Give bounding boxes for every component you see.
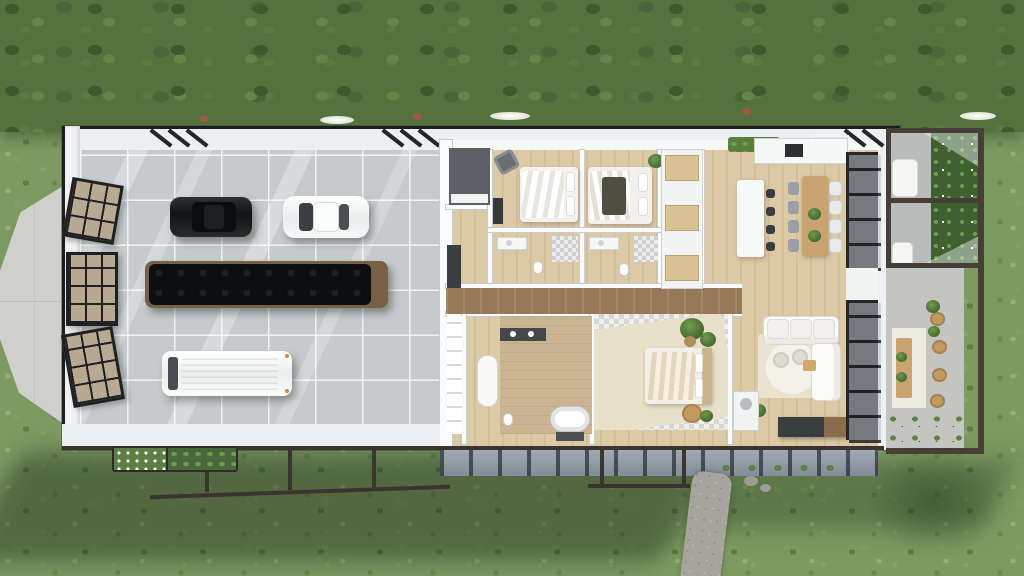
barn-door-open-top <box>62 177 124 245</box>
pergola-south-beam <box>886 448 984 454</box>
wicker-chair <box>930 312 945 326</box>
wicker-chair <box>682 404 702 423</box>
plant <box>700 410 713 422</box>
bed-pillow <box>638 173 648 192</box>
suv-roof <box>204 205 224 229</box>
bedroom1-dresser <box>493 198 503 224</box>
bedroom2-bed <box>588 167 652 224</box>
southwest-planter-box <box>112 446 238 472</box>
van-windshield <box>168 357 178 390</box>
sofa-cushion <box>814 320 834 338</box>
aerial-floorplan-render <box>0 0 1024 576</box>
pergola-cross-beam <box>886 198 984 203</box>
coupe-rear-window <box>339 204 349 230</box>
bar-stool <box>766 242 775 251</box>
sofa-cushion <box>768 320 788 338</box>
wicker-chair <box>932 340 947 354</box>
outdoor-dining-table <box>896 338 912 398</box>
southeast-garden-bed <box>718 460 834 500</box>
table-plant <box>808 208 821 220</box>
sofa-cushion <box>791 320 811 338</box>
green-shrubs <box>168 448 236 470</box>
deck-plant <box>926 300 940 313</box>
coffee-tray-table <box>803 360 816 371</box>
media-console <box>778 417 846 437</box>
hedge-flowers <box>960 112 996 120</box>
cooktop <box>785 144 803 157</box>
frame-post <box>372 450 376 488</box>
washer-drum <box>740 398 752 410</box>
wall <box>580 150 584 288</box>
toilet <box>504 414 512 425</box>
terracotta-pot <box>200 115 209 122</box>
toilet <box>534 262 542 273</box>
closet-shelf-wall <box>447 316 462 434</box>
basin <box>528 331 534 337</box>
covered-boat <box>145 261 388 308</box>
black-suv <box>170 197 252 237</box>
van-marker-light <box>285 354 289 358</box>
trailer-hook <box>139 263 146 267</box>
central-hallway <box>446 288 742 314</box>
shower-checker-floor <box>552 236 578 262</box>
corner-plant <box>700 332 716 347</box>
frame-post <box>682 450 686 486</box>
dining-chair <box>788 182 799 195</box>
dining-chair <box>830 220 841 233</box>
trailer-hook <box>139 302 146 306</box>
glass-pane <box>849 303 881 443</box>
apron-joint <box>34 183 35 427</box>
table-plant <box>896 352 907 362</box>
bed-duvet <box>647 352 695 400</box>
barn-door-middle <box>66 252 118 326</box>
garden-stone <box>760 484 771 492</box>
white-van <box>162 351 292 396</box>
bedroom1-bed <box>520 167 578 222</box>
toilet <box>620 264 628 275</box>
dining-chair <box>830 201 841 214</box>
office-room <box>449 148 490 205</box>
pergola-east-beam <box>978 128 984 454</box>
wall <box>488 228 662 232</box>
hedge-flowers <box>320 116 354 124</box>
bed-headboard <box>702 348 712 404</box>
entry-cabinet <box>447 245 461 288</box>
bar-stool <box>766 225 775 234</box>
basin <box>598 240 604 246</box>
console-wood-section <box>824 417 846 437</box>
dining-chair <box>830 182 841 195</box>
dining-chair <box>788 220 799 233</box>
van-roof-ribs <box>182 357 278 390</box>
white-flower-bush <box>114 448 166 470</box>
wicker-chair <box>932 368 947 382</box>
bathroom-vanity <box>498 238 526 249</box>
basin <box>510 331 516 337</box>
closet-oval-bench <box>478 356 497 406</box>
terracotta-pot <box>742 108 751 115</box>
table-plant <box>896 372 907 382</box>
kitchen-island <box>737 180 764 257</box>
frame-post <box>288 450 292 490</box>
pouf <box>773 352 789 368</box>
basin <box>506 240 512 246</box>
pantry-shelf <box>666 156 698 180</box>
master-vanity <box>500 328 546 341</box>
bed-duvet <box>522 171 564 218</box>
pantry-hall <box>662 150 702 288</box>
east-glass-wall-lower <box>846 300 878 440</box>
white-coupe <box>283 196 369 238</box>
dining-chair <box>830 239 841 252</box>
bed-pillow <box>695 353 703 373</box>
wicker-pot <box>684 336 696 347</box>
east-glass-wall-upper <box>846 152 878 268</box>
dining-chair <box>788 201 799 214</box>
terracotta-pot <box>413 113 422 120</box>
bed-pillow <box>566 196 575 216</box>
boat-black-cover <box>149 264 371 305</box>
wall <box>446 205 492 209</box>
table-plant <box>808 230 821 242</box>
sectional-sofa-arm <box>812 344 840 400</box>
coupe-roof <box>313 202 339 232</box>
bed-dark-throw <box>602 177 626 215</box>
bed-pillow <box>566 172 575 192</box>
bar-stool <box>766 207 775 216</box>
glass-pane <box>849 155 881 271</box>
bath-mat <box>556 432 584 441</box>
hedge-flowers <box>490 112 530 120</box>
deck-plant <box>928 326 940 337</box>
wicker-chair <box>930 394 945 408</box>
office-desk <box>451 194 488 203</box>
bed-pillow <box>638 197 648 216</box>
shower-checker-floor <box>634 236 658 262</box>
freestanding-tub <box>551 407 589 431</box>
pantry-shelf <box>666 256 698 280</box>
pantry-shelf <box>666 206 698 230</box>
east-wall-cabinet <box>846 268 878 300</box>
kitchen-wall-counter <box>755 139 847 163</box>
sectional-sofa-chaise <box>764 317 838 344</box>
bar-stool <box>766 189 775 198</box>
frame-post <box>600 450 604 486</box>
dining-chair <box>788 239 799 252</box>
bathroom-vanity <box>590 238 618 249</box>
coupe-windshield <box>299 203 313 231</box>
bed-pillow <box>695 378 703 398</box>
wall <box>728 314 732 444</box>
garden-stone <box>744 476 758 486</box>
master-bed <box>645 348 712 404</box>
garage-south-fascia <box>62 424 440 448</box>
van-marker-light <box>285 389 289 393</box>
laundry-appliance <box>734 392 758 430</box>
wall <box>462 314 466 444</box>
